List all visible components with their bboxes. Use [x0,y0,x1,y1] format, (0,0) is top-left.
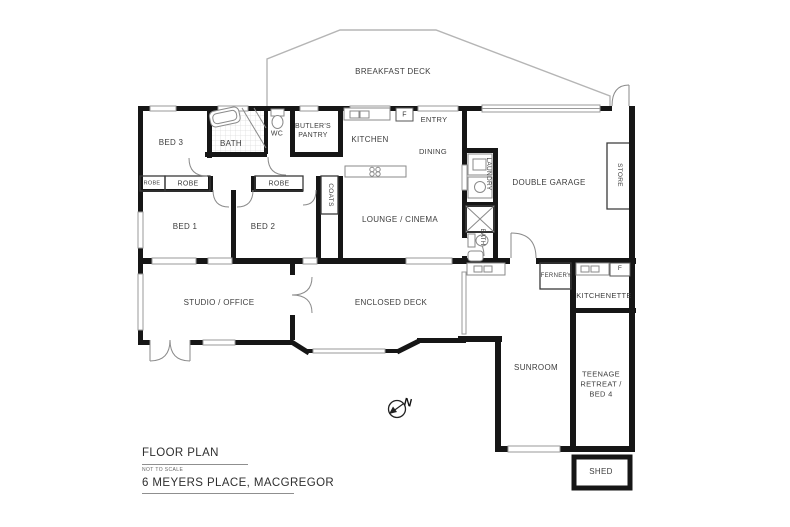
room-label-wc: WC [271,129,283,138]
kitchen-bench [344,108,390,120]
room-label-bed-2: BED 2 [251,222,276,232]
room-label-sunroom: SUNROOM [514,363,558,373]
sink-icon [350,111,369,118]
room-label-fridge-kitchen: F [402,110,407,119]
room-label-bed-3: BED 3 [159,138,184,148]
wc-door [268,157,286,175]
room-label-robe-bed3: ROBE [144,180,161,187]
room-label-teenage-retreat: TEENAGE RETREAT / BED 4 [574,369,628,398]
room-label-double-garage: DOUBLE GARAGE [512,178,585,188]
studio-ext-door-left [150,340,170,361]
compass-north-label: N [403,396,414,410]
title-underline [142,464,248,465]
bed1-door [213,190,229,207]
room-label-kitchenette: KITCHENETTE [576,291,631,301]
room-label-kitchen: KITCHEN [351,135,388,145]
garage-rear-door [511,233,536,258]
address: 6 MEYERS PLACE, MACGREGOR [142,477,334,489]
room-label-fernery: FERNERY [541,273,572,281]
room-label-shed: SHED [589,467,612,477]
kitchenette-bench-right [576,263,609,275]
sink2-icon [468,251,483,261]
kitchenette-bench-left [467,263,505,275]
deck-double-door-bottom [292,295,312,313]
room-label-lounge-cinema: LOUNGE / CINEMA [362,215,438,225]
plan-title: FLOOR PLAN [142,447,219,459]
room-label-bath: BATH [220,139,242,149]
room-label-butlers-pantry: BUTLER'S PANTRY [288,122,338,140]
bed3-door [189,158,207,176]
floor-plan-page: N BREAKFAST DECKBED 3BATHWCBUTLER'S PANT… [0,0,790,527]
floor-plan-drawing: N [0,0,790,527]
room-label-fridge-kitchenette: F [618,265,622,273]
bed2-hall-door [237,190,253,207]
scale-note: NOT TO SCALE [142,467,183,473]
address-underline [142,493,294,494]
room-label-studio-office: STUDIO / OFFICE [184,298,255,308]
room-label-breakfast-deck: BREAKFAST DECK [355,67,431,77]
room-label-laundry: LAUNDRY [484,157,492,190]
room-label-bed-1: BED 1 [173,222,198,232]
room-label-coats: COATS [326,183,334,206]
deck-double-door-top [292,277,312,295]
room-label-dining: DINING [419,147,447,157]
studio-ext-door-right [170,340,190,361]
room-label-robe-bed1: ROBE [177,179,198,188]
compass-icon: N [389,396,414,417]
toilet-icon [271,109,284,129]
breakfast-deck-outline [267,30,610,106]
bed2-door [303,190,316,205]
room-label-robe-bed2: ROBE [268,179,289,188]
island-bench [345,166,406,177]
room-label-enclosed-deck: ENCLOSED DECK [355,298,427,308]
room-label-store: STORE [615,163,623,187]
room-label-bath-2: BATH [477,229,485,246]
room-label-entry: ENTRY [421,115,448,125]
garage-side-door [612,85,629,106]
